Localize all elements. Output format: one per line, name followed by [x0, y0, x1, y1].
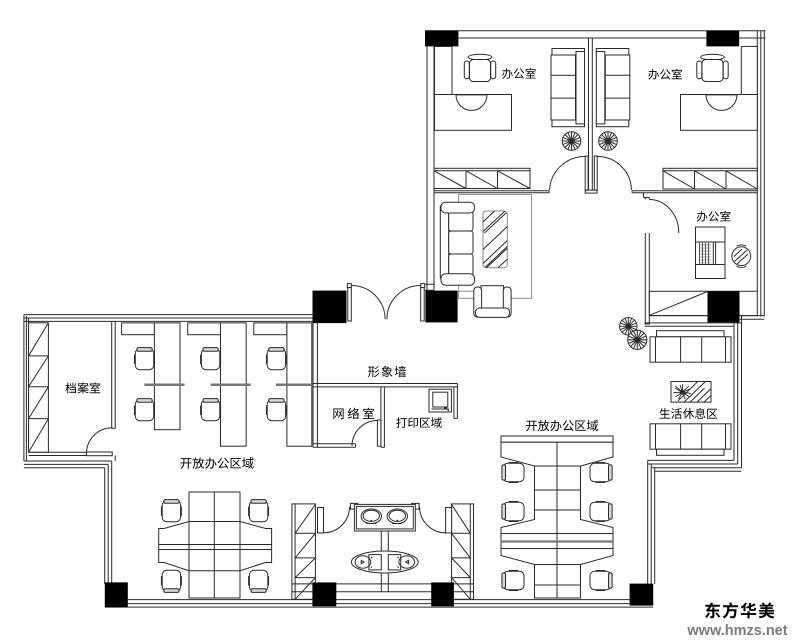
svg-text:www.hmzs.net: www.hmzs.net: [686, 623, 787, 639]
